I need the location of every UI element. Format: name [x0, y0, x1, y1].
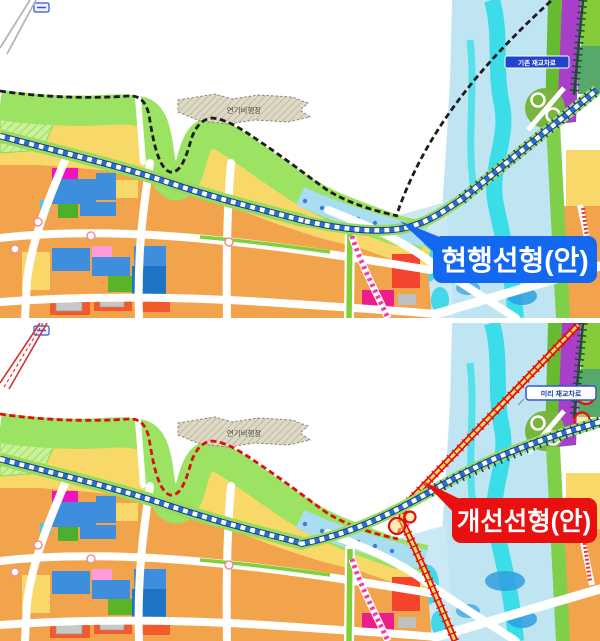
- ramp-loop: [389, 518, 405, 534]
- panel-divider: [0, 318, 600, 323]
- map-svg: 연기비행장: [0, 0, 600, 641]
- crossing-label-text: 기존 재교차로: [518, 58, 556, 67]
- ramp-loop: [405, 512, 416, 523]
- crossing-label-current: 기존 재교차로: [505, 56, 569, 68]
- crossing-label-text: 미리 재교차로: [541, 389, 582, 398]
- map-comparison-image: 연기비행장: [0, 0, 600, 641]
- map-panel-improved: 미리 재교차로 개선선형(안): [0, 323, 600, 641]
- callout-label: 현행선형(안): [441, 245, 588, 276]
- callout-label: 개선선형(안): [457, 508, 591, 536]
- map-panel-current: 기존 재교차로 현행선형(안): [0, 0, 600, 318]
